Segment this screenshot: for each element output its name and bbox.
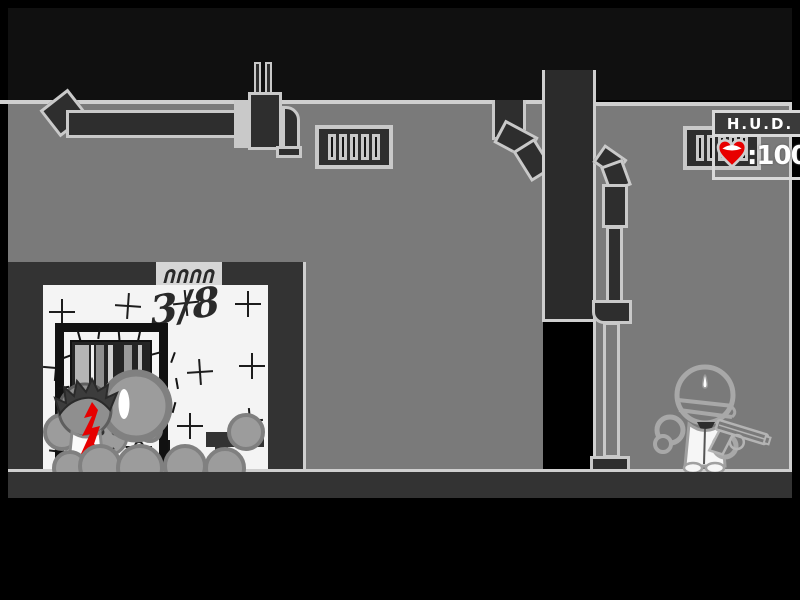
player-foot <box>706 463 724 472</box>
right-pipe-upper <box>606 226 623 306</box>
duct-rounded-elbow <box>282 106 300 150</box>
pile-dome <box>206 449 244 472</box>
big-head-eye <box>119 389 130 419</box>
right-pipe-foot <box>592 300 632 324</box>
central-column <box>542 70 596 322</box>
vent-slat <box>328 134 336 160</box>
pile-dome <box>80 446 120 472</box>
squiggle-mark <box>163 269 176 283</box>
pile-dome <box>118 446 162 472</box>
duct-flange <box>234 100 248 148</box>
tile-cross <box>114 292 142 320</box>
tile-cross <box>235 291 261 317</box>
vest-seam <box>704 429 705 464</box>
vent-slat <box>361 134 369 160</box>
player-character <box>645 362 780 472</box>
player-foot <box>684 463 702 472</box>
hud-panel: H.U.D. :100 <box>712 110 800 180</box>
body-pile <box>40 360 270 472</box>
vent-slat <box>696 135 704 161</box>
squiggle-mark <box>176 269 189 283</box>
player-hand <box>655 436 671 452</box>
bottom-black <box>0 498 800 600</box>
duct-junction-box <box>248 92 282 150</box>
health-value: :100 <box>747 141 800 171</box>
tile-cross <box>49 299 75 325</box>
big-head <box>103 373 169 439</box>
heart-icon <box>716 139 748 171</box>
vent-slat <box>372 134 380 160</box>
floor-strip <box>8 472 792 498</box>
right-duct-taper <box>602 184 628 228</box>
pile-head <box>229 415 263 449</box>
stage-top-dark <box>8 8 792 100</box>
hud-title: H.U.D. <box>715 113 800 137</box>
ceiling-duct-horizontal <box>66 110 244 138</box>
vent-slat <box>339 134 347 160</box>
candle-icon <box>703 375 708 388</box>
wall-vent-grille <box>315 125 393 169</box>
duct-elbow-foot <box>276 146 302 158</box>
pile-dome <box>165 446 205 472</box>
game-viewport: 3/8 <box>0 0 800 600</box>
right-pipe-lower <box>603 322 620 458</box>
vent-slat <box>350 134 358 160</box>
ceiling-line-left-notch <box>0 100 10 104</box>
